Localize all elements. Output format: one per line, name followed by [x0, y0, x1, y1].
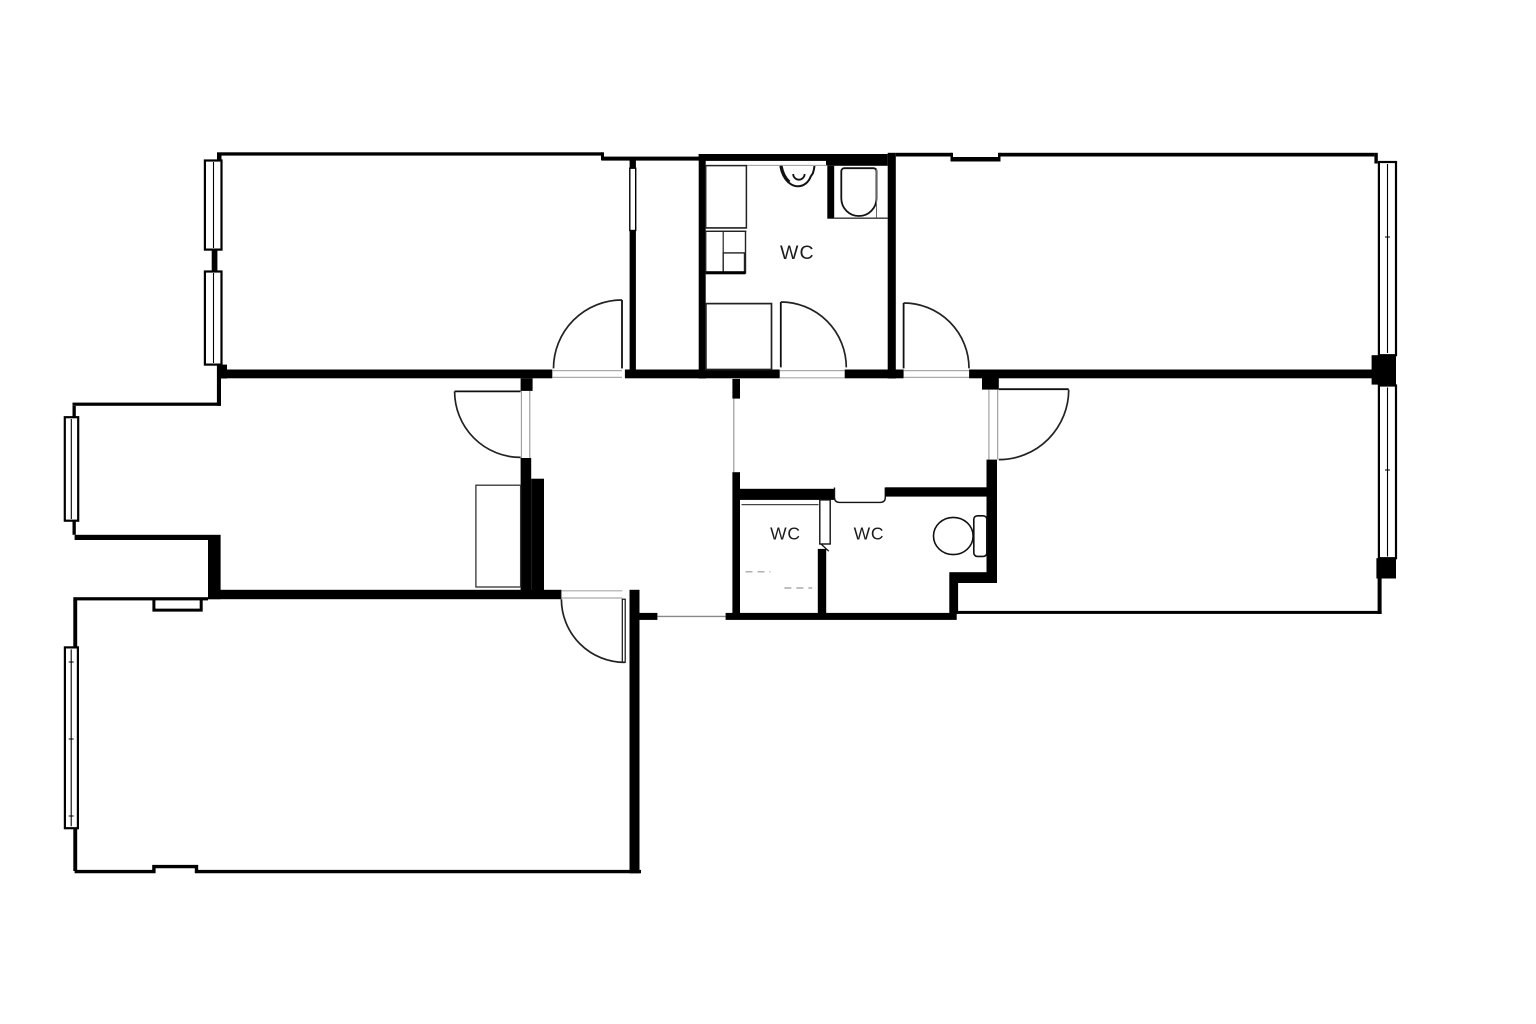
- svg-text:WC: WC: [854, 524, 885, 544]
- svg-text:WC: WC: [780, 242, 815, 264]
- svg-text:WC: WC: [770, 524, 801, 544]
